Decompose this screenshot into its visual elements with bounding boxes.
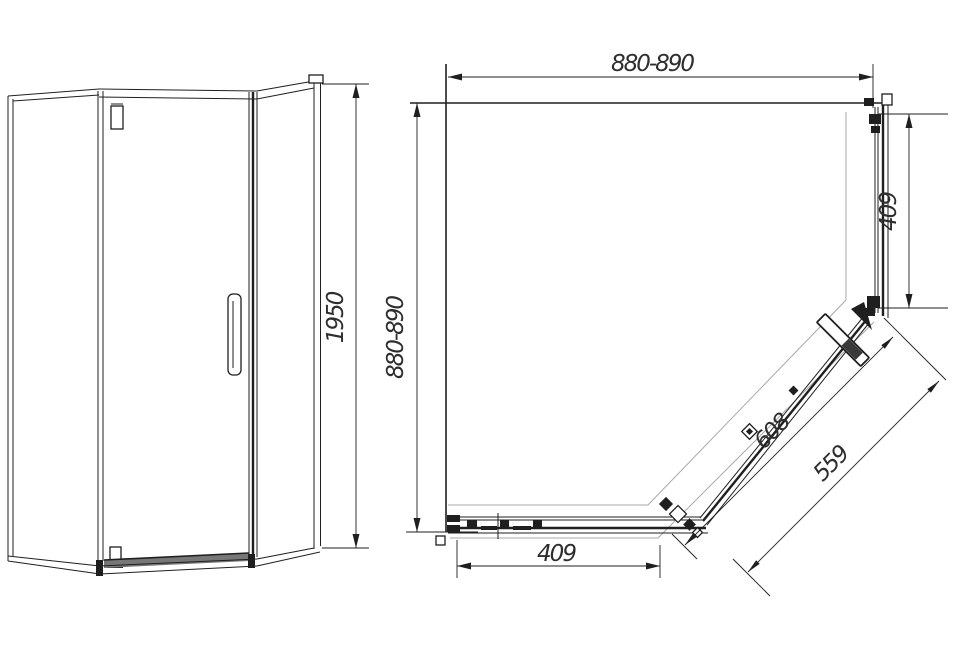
elevation-door — [98, 89, 257, 568]
right-panel-top-cap — [309, 75, 323, 83]
plan-door-handle — [817, 314, 869, 366]
diagonal-ext-top — [884, 318, 946, 380]
depth-arrow-top — [414, 103, 421, 117]
door-width-dim-line — [748, 381, 939, 572]
door-handle-bar — [228, 294, 241, 375]
left-panel-top-inner — [13, 95, 99, 101]
height-arrow-top — [353, 84, 360, 98]
right-clip-4 — [867, 296, 880, 308]
side-panel-arrow-bottom — [906, 294, 913, 308]
height-dimension: 1950 — [322, 84, 369, 548]
top-rail-lower — [99, 97, 257, 99]
left-panel-top-outer — [8, 89, 99, 96]
wall-profile-clip-1 — [447, 515, 460, 522]
right-clip-2 — [869, 114, 881, 124]
side-panel-dimension: 409 — [876, 114, 948, 308]
tray-left-bottom — [8, 561, 100, 574]
glass-clip-4 — [513, 526, 531, 530]
front-panel-arrow-right — [646, 563, 660, 570]
glass-clip-2 — [481, 526, 497, 530]
top-rail-upper — [99, 89, 257, 91]
plan-handle-bar — [817, 314, 869, 366]
frame-foot-left — [96, 560, 103, 576]
front-panel-dimension: 409 — [457, 540, 660, 578]
front-panel-dim-label: 409 — [537, 541, 576, 567]
wall-profile-clip-2 — [447, 525, 460, 532]
corner-bracket — [436, 536, 445, 545]
glass-clip-5 — [533, 520, 542, 527]
side-panel-arrow-top — [906, 114, 913, 128]
diagonal-dimension: 608 — [672, 318, 946, 559]
right-clip-3 — [871, 126, 880, 133]
hinge-top — [111, 104, 123, 129]
door-upper-clip — [789, 386, 799, 396]
depth-arrow-bottom — [414, 518, 421, 532]
door-width-ext-bottom — [733, 559, 770, 596]
width-dimension: 880-890 — [448, 51, 873, 108]
glass-clip-3 — [500, 520, 509, 527]
door-width-dim-label: 559 — [808, 440, 854, 486]
frame-foot-right — [248, 554, 255, 568]
plan-view: 880-890 880-890 409 409 — [383, 51, 948, 596]
hinge-top-body — [111, 106, 123, 129]
height-arrow-bottom — [353, 534, 360, 548]
glass-clip-1 — [467, 520, 477, 527]
door-hinge-block-1 — [659, 497, 673, 511]
width-arrow-left — [448, 74, 462, 81]
elevation-tray — [8, 548, 320, 576]
diagonal-dim-line — [685, 337, 893, 545]
depth-dimension: 880-890 — [383, 103, 478, 532]
front-panel-arrow-left — [457, 563, 471, 570]
technical-drawing-canvas: 1950 — [0, 0, 953, 672]
width-dim-label: 880-890 — [611, 51, 694, 77]
depth-dim-label: 880-890 — [383, 296, 409, 379]
door-width-dimension: 559 — [733, 381, 939, 596]
side-panel-dim-label: 409 — [876, 192, 902, 231]
tray-right-top — [257, 548, 314, 559]
right-clip-1 — [864, 98, 874, 106]
tray-outline-inner — [448, 112, 846, 505]
front-elevation-view: 1950 — [8, 75, 369, 576]
height-dim-label: 1950 — [323, 291, 349, 343]
tray-left-top — [8, 556, 100, 566]
elevation-left-panel — [8, 89, 99, 561]
elevation-right-panel — [257, 75, 323, 549]
width-arrow-right — [859, 74, 873, 81]
shower-enclosure-drawing: 1950 — [0, 0, 953, 672]
tray-front-bottom — [100, 566, 257, 574]
door-handle — [228, 294, 241, 375]
tray-right-bottom — [257, 552, 320, 566]
right-wall-cap — [882, 94, 892, 105]
